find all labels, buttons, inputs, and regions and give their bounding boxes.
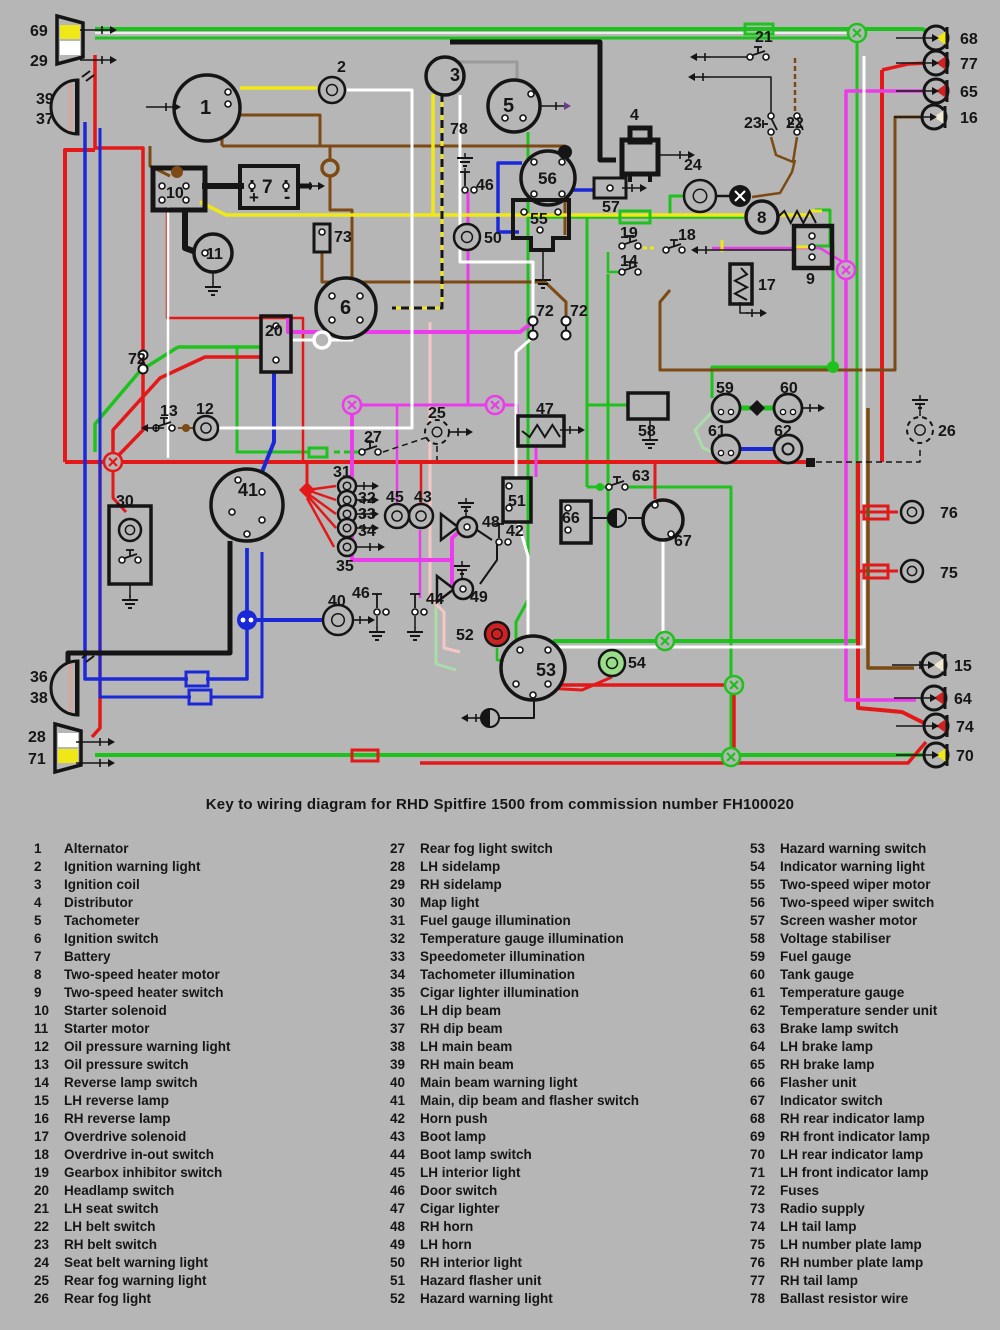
key-item-45: 45LH interior light — [390, 1163, 750, 1181]
component-number-label: 34 — [358, 523, 376, 540]
key-item-46: 46Door switch — [390, 1181, 750, 1199]
component-number-label: 3 — [450, 65, 460, 85]
key-item-4: 4Distributor — [34, 893, 390, 911]
component-number-label: 31 — [333, 464, 351, 481]
key-item-number: 53 — [750, 841, 780, 856]
key-item-label: Indicator switch — [780, 1093, 883, 1108]
component-number-label: 50 — [484, 230, 502, 247]
key-item-label: Distributor — [64, 895, 133, 910]
key-item-73: 73Radio supply — [750, 1199, 990, 1217]
key-item-label: Ignition switch — [64, 931, 159, 946]
key-item-label: Temperature gauge illumination — [420, 931, 624, 946]
terminal-pin — [329, 317, 335, 323]
sidelamp-cell — [58, 733, 78, 747]
horn-pin — [464, 524, 470, 530]
key-item-37: 37RH dip beam — [390, 1019, 750, 1037]
key-item-number: 68 — [750, 1111, 780, 1126]
key-item-number: 63 — [750, 1021, 780, 1036]
key-item-label: Gearbox inhibitor switch — [64, 1165, 222, 1180]
key-item-48: 48RH horn — [390, 1217, 750, 1235]
key-item-label: LH belt switch — [64, 1219, 156, 1234]
component-number-label: 26 — [938, 423, 956, 440]
component-number-label: 59 — [716, 380, 734, 397]
key-item-15: 15LH reverse lamp — [34, 1091, 390, 1109]
component-number-label: 52 — [456, 627, 474, 644]
key-item-76: 76RH number plate lamp — [750, 1253, 990, 1271]
gauge-pin — [790, 409, 795, 414]
key-item-11: 11Starter motor — [34, 1019, 390, 1037]
key-item-label: Tank gauge — [780, 967, 854, 982]
component-number-label: 49 — [470, 589, 488, 606]
component-number-label: 39 — [36, 91, 54, 108]
key-item-2: 2Ignition warning light — [34, 857, 390, 875]
bulb-icon — [684, 180, 716, 212]
key-item-label: RH main beam — [420, 1057, 514, 1072]
switch-contact — [606, 484, 612, 490]
key-item-label: Map light — [420, 895, 479, 910]
component-number-label: 38 — [30, 690, 48, 707]
terminal-pin — [521, 209, 527, 215]
key-item-32: 32Temperature gauge illumination — [390, 929, 750, 947]
key-item-label: LH front indicator lamp — [780, 1165, 929, 1180]
key-item-label: Two-speed heater switch — [64, 985, 224, 1000]
component-number-label: 48 — [482, 514, 500, 531]
key-item-number: 22 — [34, 1219, 64, 1234]
terminal-pin — [530, 692, 536, 698]
key-item-label: LH reverse lamp — [64, 1093, 169, 1108]
key-item-number: 21 — [34, 1201, 64, 1216]
key-item-44: 44Boot lamp switch — [390, 1145, 750, 1163]
bulb-icon — [194, 416, 218, 440]
key-item-42: 42Horn push — [390, 1109, 750, 1127]
key-item-53: 53Hazard warning switch — [750, 839, 990, 857]
key-item-number: 39 — [390, 1057, 420, 1072]
key-item-label: Rear fog light — [64, 1291, 151, 1306]
key-item-label: Horn push — [420, 1111, 488, 1126]
key-item-label: Fuel gauge — [780, 949, 851, 964]
component-number-label: 62 — [774, 423, 792, 440]
key-item-12: 12Oil pressure warning light — [34, 1037, 390, 1055]
key-item-label: Rear fog warning light — [64, 1273, 207, 1288]
terminal-pin — [809, 233, 815, 239]
key-item-40: 40Main beam warning light — [390, 1073, 750, 1091]
fuse-icon — [562, 331, 571, 340]
component-number-label: 37 — [36, 111, 54, 128]
key-item-number: 34 — [390, 967, 420, 982]
key-item-number: 40 — [390, 1075, 420, 1090]
terminal-pin — [652, 502, 658, 508]
key-item-27: 27Rear fog light switch — [390, 839, 750, 857]
component-number-label: 46 — [476, 177, 494, 194]
bulb-icon — [901, 560, 923, 582]
key-item-label: Ballast resistor wire — [780, 1291, 908, 1306]
key-item-label: RH horn — [420, 1219, 473, 1234]
terminal-pin — [809, 244, 815, 250]
key-item-number: 31 — [390, 913, 420, 928]
component-number-label: 45 — [386, 489, 404, 506]
component-number-label: 11 — [206, 246, 223, 263]
key-item-label: Headlamp switch — [64, 1183, 174, 1198]
terminal-pin — [559, 159, 565, 165]
key-item-label: Fuses — [780, 1183, 819, 1198]
switch-contact — [768, 129, 774, 135]
key-item-43: 43Boot lamp — [390, 1127, 750, 1145]
component-number-label: 72 — [536, 303, 554, 320]
key-item-label: Hazard flasher unit — [420, 1273, 542, 1288]
key-item-78: 78Ballast resistor wire — [750, 1289, 990, 1307]
key-item-25: 25Rear fog warning light — [34, 1271, 390, 1289]
switch-contact — [375, 449, 381, 455]
terminal-pin — [329, 293, 335, 299]
key-item-label: LH rear indicator lamp — [780, 1147, 923, 1162]
key-item-label: Tachometer illumination — [420, 967, 575, 982]
component-number-label: 44 — [426, 591, 444, 608]
component-number-label: 65 — [960, 84, 978, 101]
component-number-label: 72 — [570, 303, 588, 320]
key-item-label: RH tail lamp — [780, 1273, 858, 1288]
terminal-pin — [607, 185, 613, 191]
key-item-57: 57Screen washer motor — [750, 911, 990, 929]
component-number-label: 75 — [940, 565, 958, 582]
sidelamp-icon — [55, 724, 81, 772]
component-number-label: 74 — [956, 719, 974, 736]
key-item-number: 35 — [390, 985, 420, 1000]
component-number-label: 69 — [30, 23, 48, 40]
key-item-number: 55 — [750, 877, 780, 892]
key-item-55: 55Two-speed wiper motor — [750, 875, 990, 893]
key-item-number: 52 — [390, 1291, 420, 1306]
switch-contact — [622, 484, 628, 490]
key-item-62: 62Temperature sender unit — [750, 1001, 990, 1019]
key-item-number: 33 — [390, 949, 420, 964]
terminal-pin — [259, 489, 265, 495]
junction-dot — [827, 361, 839, 373]
gauge-pin — [728, 450, 733, 455]
key-item-number: 69 — [750, 1129, 780, 1144]
key-item-number: 6 — [34, 931, 64, 946]
key-item-label: Door switch — [420, 1183, 497, 1198]
component-number-label: 20 — [265, 323, 283, 340]
gauge-pin — [728, 409, 733, 414]
component-number-label: 4 — [630, 107, 639, 124]
key-item-label: RH interior light — [420, 1255, 522, 1270]
terminal-pin — [225, 101, 231, 107]
key-item-49: 49LH horn — [390, 1235, 750, 1253]
component-number-label: 70 — [956, 748, 974, 765]
key-item-label: Two-speed heater motor — [64, 967, 220, 982]
component-number-label: 24 — [684, 157, 702, 174]
junction-dot — [182, 424, 190, 432]
key-item-label: RH brake lamp — [780, 1057, 875, 1072]
key-item-number: 57 — [750, 913, 780, 928]
component-number-label: 40 — [328, 593, 346, 610]
key-item-19: 19Gearbox inhibitor switch — [34, 1163, 390, 1181]
bulb-icon — [319, 77, 345, 103]
key-item-33: 33Speedometer illumination — [390, 947, 750, 965]
key-item-number: 62 — [750, 1003, 780, 1018]
key-item-label: Oil pressure warning light — [64, 1039, 231, 1054]
sidelamp-cell — [58, 749, 78, 763]
component-number-label: 27 — [364, 429, 382, 446]
wiring-diagram: 6929393712378542123226877651624895756551… — [0, 0, 1000, 780]
key-item-16: 16RH reverse lamp — [34, 1109, 390, 1127]
key-item-7: 7Battery — [34, 947, 390, 965]
terminal-pin — [229, 509, 235, 515]
key-item-number: 2 — [34, 859, 64, 874]
component-number-label: 73 — [334, 229, 352, 246]
terminal-pin — [273, 357, 279, 363]
component-number-label: 60 — [780, 380, 798, 397]
key-item-number: 28 — [390, 859, 420, 874]
gauge-pin — [718, 409, 723, 414]
bulb-icon — [119, 519, 141, 541]
terminal-pin — [559, 191, 565, 197]
key-item-56: 56Two-speed wiper switch — [750, 893, 990, 911]
component-number-label: 43 — [414, 489, 432, 506]
key-item-64: 64LH brake lamp — [750, 1037, 990, 1055]
key-item-number: 26 — [34, 1291, 64, 1306]
terminal-pin — [531, 191, 537, 197]
component-number-label: 21 — [755, 29, 773, 46]
key-item-label: Voltage stabiliser — [780, 931, 891, 946]
key-item-label: Temperature sender unit — [780, 1003, 937, 1018]
switch-contact — [619, 243, 625, 249]
component-number-label: 13 — [160, 403, 178, 420]
key-item-1: 1Alternator — [34, 839, 390, 857]
switch-contact — [768, 113, 774, 119]
component-number-label: 22 — [786, 115, 804, 132]
terminal-pin — [244, 531, 250, 537]
key-item-65: 65RH brake lamp — [750, 1055, 990, 1073]
key-item-17: 17Overdrive solenoid — [34, 1127, 390, 1145]
key-item-label: Boot lamp — [420, 1129, 486, 1144]
key-item-number: 78 — [750, 1291, 780, 1306]
switch-contact — [412, 609, 418, 615]
terminal-pin — [520, 115, 526, 121]
connector-square — [806, 458, 815, 467]
key-item-label: RH front indicator lamp — [780, 1129, 930, 1144]
component-number-label: 2 — [337, 59, 346, 76]
terminal-pin — [517, 647, 523, 653]
terminal-pin — [565, 527, 571, 533]
key-item-14: 14Reverse lamp switch — [34, 1073, 390, 1091]
ring-connector-icon — [322, 160, 338, 176]
bulb-icon — [599, 650, 625, 676]
key-item-label: Overdrive solenoid — [64, 1129, 186, 1144]
component-number-label: 23 — [744, 115, 762, 132]
component-number-label: 67 — [674, 533, 692, 550]
component-number-label: 7 — [262, 177, 273, 198]
key-item-label: Reverse lamp switch — [64, 1075, 198, 1090]
bulb-icon — [385, 504, 409, 528]
dot — [249, 618, 254, 623]
key-item-label: Radio supply — [780, 1201, 865, 1216]
terminal-pin — [357, 317, 363, 323]
key-item-61: 61Temperature gauge — [750, 983, 990, 1001]
page-root: 6929393712378542123226877651624895756551… — [0, 0, 1000, 1330]
key-item-number: 76 — [750, 1255, 780, 1270]
key-item-26: 26Rear fog light — [34, 1289, 390, 1307]
key-item-number: 59 — [750, 949, 780, 964]
key-item-number: 67 — [750, 1093, 780, 1108]
component-number-label: 66 — [562, 510, 580, 527]
key-item-label: Main beam warning light — [420, 1075, 578, 1090]
key-item-label: Indicator warning light — [780, 859, 925, 874]
key-item-41: 41Main, dip beam and flasher switch — [390, 1091, 750, 1109]
sidelamp-icon — [57, 16, 83, 64]
component-number-label: 14 — [620, 253, 638, 270]
component-number-label: 33 — [358, 506, 376, 523]
component-number-label: 54 — [628, 655, 646, 672]
fuse-icon — [529, 331, 538, 340]
terminal-pin — [545, 681, 551, 687]
terminal-pin — [506, 483, 512, 489]
key-item-label: Ignition warning light — [64, 859, 200, 874]
component-number-label: 51 — [508, 493, 526, 510]
bulb-icon — [409, 504, 433, 528]
key-item-label: RH belt switch — [64, 1237, 157, 1252]
component-number-label: 77 — [960, 56, 978, 73]
key-item-label: RH sidelamp — [420, 877, 502, 892]
key-item-number: 54 — [750, 859, 780, 874]
key-item-number: 51 — [390, 1273, 420, 1288]
key-item-label: RH number plate lamp — [780, 1255, 923, 1270]
key-item-number: 15 — [34, 1093, 64, 1108]
key-item-number: 14 — [34, 1075, 64, 1090]
key-item-label: Speedometer illumination — [420, 949, 585, 964]
component-number-label: + — [249, 188, 259, 207]
junction-dot — [558, 145, 572, 159]
terminal-pin — [159, 183, 165, 189]
key-item-number: 44 — [390, 1147, 420, 1162]
key-item-label: LH brake lamp — [780, 1039, 873, 1054]
component-number-label: 6 — [340, 297, 351, 319]
key-item-number: 42 — [390, 1111, 420, 1126]
key-item-5: 5Tachometer — [34, 911, 390, 929]
key-item-21: 21LH seat switch — [34, 1199, 390, 1217]
dashed-lamp-icon — [907, 417, 933, 443]
key-item-label: Alternator — [64, 841, 129, 856]
key-item-71: 71LH front indicator lamp — [750, 1163, 990, 1181]
key-item-75: 75LH number plate lamp — [750, 1235, 990, 1253]
junction-dot — [171, 166, 183, 178]
key-item-number: 74 — [750, 1219, 780, 1234]
key-item-58: 58Voltage stabiliser — [750, 929, 990, 947]
terminal-pin — [225, 89, 231, 95]
component-number-label: 61 — [708, 423, 726, 440]
component-number-label: 28 — [28, 729, 46, 746]
component-number-label: 18 — [678, 227, 696, 244]
key-column-1: 1Alternator2Ignition warning light3Ignit… — [34, 839, 390, 1307]
component-number-label: 12 — [196, 401, 214, 418]
key-item-number: 8 — [34, 967, 64, 982]
gauge-icon — [774, 394, 802, 422]
bulb-icon — [338, 519, 356, 537]
key-item-50: 50RH interior light — [390, 1253, 750, 1271]
key-item-number: 56 — [750, 895, 780, 910]
key-item-number: 23 — [34, 1237, 64, 1252]
bulb-icon — [454, 224, 480, 250]
key-item-22: 22LH belt switch — [34, 1217, 390, 1235]
component-number-label: 76 — [940, 505, 958, 522]
switch-contact — [135, 557, 141, 563]
terminal-pin — [555, 209, 561, 215]
component-number-label: 46 — [352, 585, 370, 602]
component-number-label: 5 — [503, 95, 514, 117]
key-item-number: 50 — [390, 1255, 420, 1270]
terminal-pin — [809, 254, 815, 260]
key-item-number: 24 — [34, 1255, 64, 1270]
key-item-label: LH main beam — [420, 1039, 512, 1054]
key-item-number: 47 — [390, 1201, 420, 1216]
key-item-number: 12 — [34, 1039, 64, 1054]
component-number-label: 56 — [538, 169, 557, 188]
key-item-label: Cigar lighter — [420, 1201, 500, 1216]
diagram-key-title: Key to wiring diagram for RHD Spitfire 1… — [0, 796, 1000, 813]
component-number-label: 55 — [530, 211, 548, 228]
key-item-67: 67Indicator switch — [750, 1091, 990, 1109]
key-item-label: Two-speed wiper motor — [780, 877, 931, 892]
key-item-20: 20Headlamp switch — [34, 1181, 390, 1199]
component-number-label: 72 — [128, 351, 146, 368]
key-item-number: 16 — [34, 1111, 64, 1126]
terminal-pin — [159, 197, 165, 203]
component-number-label: 9 — [806, 271, 815, 288]
sidelamp-cell — [60, 41, 80, 55]
key-item-28: 28LH sidelamp — [390, 857, 750, 875]
key-item-number: 41 — [390, 1093, 420, 1108]
key-item-label: Starter motor — [64, 1021, 150, 1036]
key-item-label: Battery — [64, 949, 111, 964]
key-item-label: Hazard warning light — [420, 1291, 553, 1306]
key-item-label: Cigar lighter illumination — [420, 985, 579, 1000]
key-item-10: 10Starter solenoid — [34, 1001, 390, 1019]
key-item-66: 66Flasher unit — [750, 1073, 990, 1091]
terminal-pin — [259, 517, 265, 523]
key-item-9: 9Two-speed heater switch — [34, 983, 390, 1001]
key-item-number: 66 — [750, 1075, 780, 1090]
key-item-label: Tachometer — [64, 913, 140, 928]
key-item-34: 34Tachometer illumination — [390, 965, 750, 983]
key-item-number: 58 — [750, 931, 780, 946]
key-item-59: 59Fuel gauge — [750, 947, 990, 965]
key-item-8: 8Two-speed heater motor — [34, 965, 390, 983]
component-number-label: 10 — [166, 185, 184, 202]
component-number-label: 32 — [358, 490, 376, 507]
key-item-23: 23RH belt switch — [34, 1235, 390, 1253]
component-number-label: 57 — [602, 199, 620, 216]
key-item-label: Overdrive in-out switch — [64, 1147, 214, 1162]
key-item-label: LH tail lamp — [780, 1219, 857, 1234]
switch-contact — [462, 187, 468, 193]
key-item-number: 72 — [750, 1183, 780, 1198]
key-item-number: 5 — [34, 913, 64, 928]
key-item-31: 31Fuel gauge illumination — [390, 911, 750, 929]
component-number-label: 58 — [638, 423, 656, 440]
key-item-label: Rear fog light switch — [420, 841, 553, 856]
key-item-number: 43 — [390, 1129, 420, 1144]
key-item-number: 64 — [750, 1039, 780, 1054]
key-item-label: Hazard warning switch — [780, 841, 926, 856]
terminal-pin — [183, 197, 189, 203]
key-item-number: 37 — [390, 1021, 420, 1036]
component-number-label: 8 — [757, 208, 766, 227]
key-item-number: 36 — [390, 1003, 420, 1018]
switch-contact — [421, 609, 427, 615]
switch-contact — [663, 247, 669, 253]
key-item-number: 9 — [34, 985, 64, 1000]
switch-contact — [374, 609, 380, 615]
